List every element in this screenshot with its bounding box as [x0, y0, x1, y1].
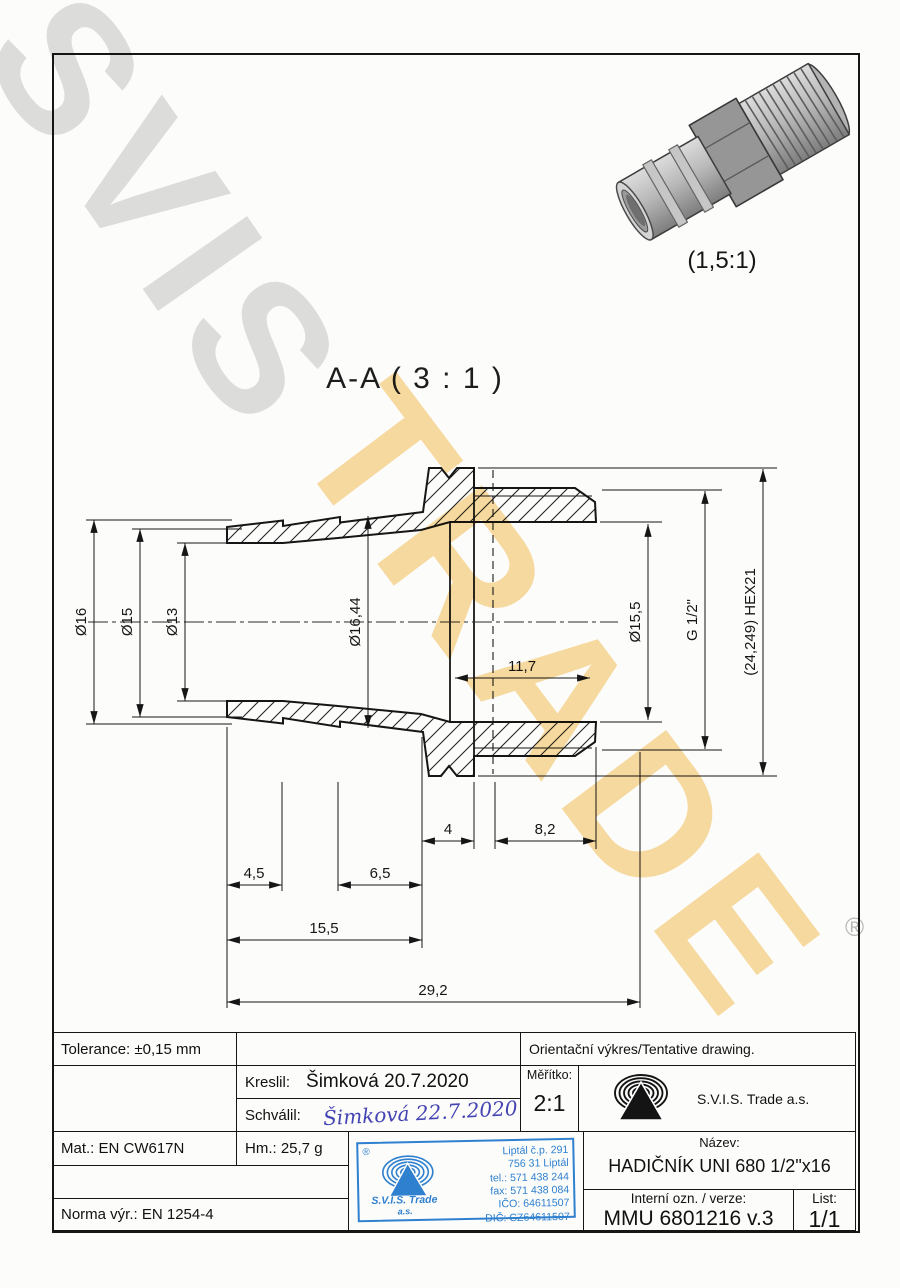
- dim-l65: 6,5: [370, 865, 391, 882]
- svis-logo: [605, 1072, 679, 1126]
- kreslil-value: Šimková 20.7.2020: [306, 1071, 469, 1093]
- drawing-sheet: (1,5:1) A-A ( 3 : 1 ): [0, 0, 900, 1288]
- company-stamp: ® S.V.I.S. Trade a.s. Liptál č.p. 291756…: [356, 1138, 576, 1223]
- stamp-address: Liptál č.p. 291756 31 Liptál tel.: 571 4…: [458, 1143, 569, 1215]
- mass-cell: Hm.: 25,7 g: [236, 1131, 349, 1166]
- dim-d1644: Ø16,44: [347, 597, 364, 646]
- material-cell: Mat.: EN CW617N: [52, 1131, 237, 1166]
- list-value: 1/1: [794, 1206, 855, 1233]
- dim-d16: Ø16: [73, 608, 90, 636]
- empty-cell-1: [236, 1032, 521, 1066]
- tentative-drawing-cell: Orientační výkres/Tentative drawing.: [520, 1032, 856, 1066]
- dim-l4: 4: [444, 821, 452, 838]
- nazev-value: HADIČNÍK UNI 680 1/2"x16: [584, 1156, 855, 1177]
- stamp-logo: [368, 1153, 447, 1199]
- view3d-scale-label: (1,5:1): [687, 247, 756, 274]
- interni-value: MMU 6801216 v.3: [584, 1207, 793, 1231]
- list-label: List:: [794, 1191, 855, 1206]
- stamp-company: S.V.I.S. Trade: [371, 1194, 437, 1207]
- upper-wall: [227, 468, 596, 543]
- kreslil-cell: Kreslil: Šimková 20.7.2020: [236, 1065, 521, 1099]
- interni-cell: Interní ozn. / verze: MMU 6801216 v.3: [583, 1189, 794, 1231]
- section-title: A-A ( 3 : 1 ): [326, 362, 504, 395]
- dim-l82: 8,2: [535, 821, 556, 838]
- lower-wall: [227, 701, 596, 776]
- kreslil-label: Kreslil:: [245, 1074, 290, 1091]
- dim-hex: (24,249) HEX21: [742, 568, 759, 676]
- title-block: Tolerance: ±0,15 mm Orientační výkres/Te…: [52, 1032, 856, 1229]
- dim-l292: 29,2: [418, 982, 447, 999]
- schvalil-signature: Šimková 22.7.2020: [323, 1096, 519, 1130]
- nazev-cell: Název: HADIČNÍK UNI 680 1/2"x16: [583, 1131, 856, 1190]
- interni-label: Interní ozn. / verze:: [584, 1191, 793, 1206]
- empty-cell-2: [52, 1065, 237, 1132]
- list-cell: List: 1/1: [793, 1189, 856, 1231]
- company-name: S.V.I.S. Trade a.s.: [697, 1091, 809, 1107]
- company-cell: S.V.I.S. Trade a.s.: [578, 1065, 856, 1132]
- dim-d15: Ø15: [119, 608, 136, 636]
- dim-d155: Ø15,5: [627, 602, 644, 643]
- dim-d13: Ø13: [164, 608, 181, 636]
- dim-l155: 15,5: [309, 920, 338, 937]
- tolerance-cell: Tolerance: ±0,15 mm: [52, 1032, 237, 1066]
- dim-l117: 11,7: [508, 658, 536, 675]
- stamp-cell: ® S.V.I.S. Trade a.s. Liptál č.p. 291756…: [348, 1131, 584, 1231]
- stamp-as: a.s.: [398, 1206, 413, 1216]
- fitting-3d-view: [604, 54, 860, 256]
- schvalil-cell: Schválil: Šimková 22.7.2020: [236, 1098, 521, 1132]
- meritko-value: 2:1: [521, 1090, 578, 1117]
- meritko-label: Měřítko:: [521, 1068, 578, 1082]
- watermark-registered-icon: ®: [845, 912, 864, 943]
- dim-g12: G 1/2": [684, 599, 701, 641]
- meritko-cell: Měřítko: 2:1: [520, 1065, 579, 1132]
- nazev-label: Název:: [584, 1135, 855, 1150]
- schvalil-label: Schválil:: [245, 1107, 301, 1124]
- dim-l45: 4,5: [244, 865, 265, 882]
- dimension-labels: Ø16 Ø15 Ø13 Ø16,44 Ø15,5 G 1/2" (24,249)…: [73, 568, 759, 999]
